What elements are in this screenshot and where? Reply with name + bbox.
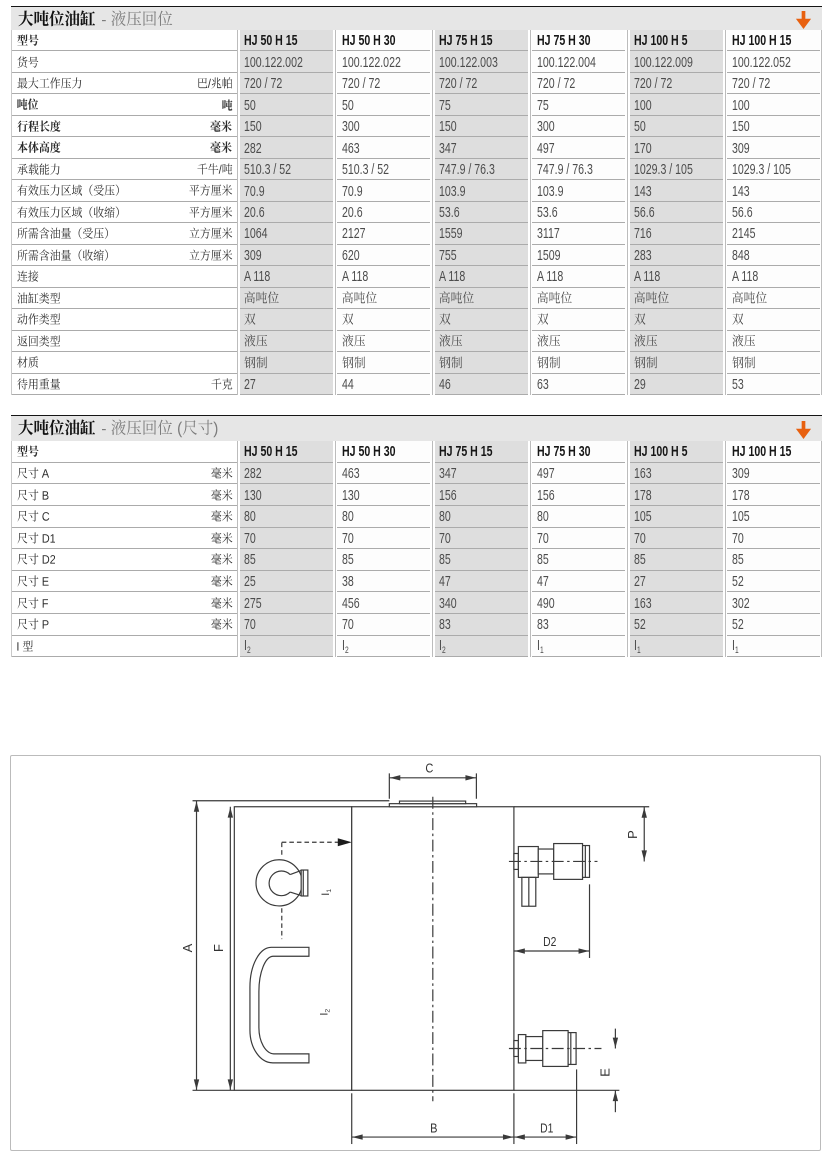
svg-text:E: E [597, 1068, 612, 1077]
svg-text:A: A [180, 943, 195, 952]
svg-text:D2: D2 [543, 935, 556, 949]
svg-text:C: C [425, 761, 433, 776]
svg-text:F: F [210, 944, 225, 952]
svg-text:D1: D1 [540, 1122, 553, 1136]
svg-text:P: P [624, 830, 639, 839]
svg-text:B: B [430, 1121, 437, 1136]
